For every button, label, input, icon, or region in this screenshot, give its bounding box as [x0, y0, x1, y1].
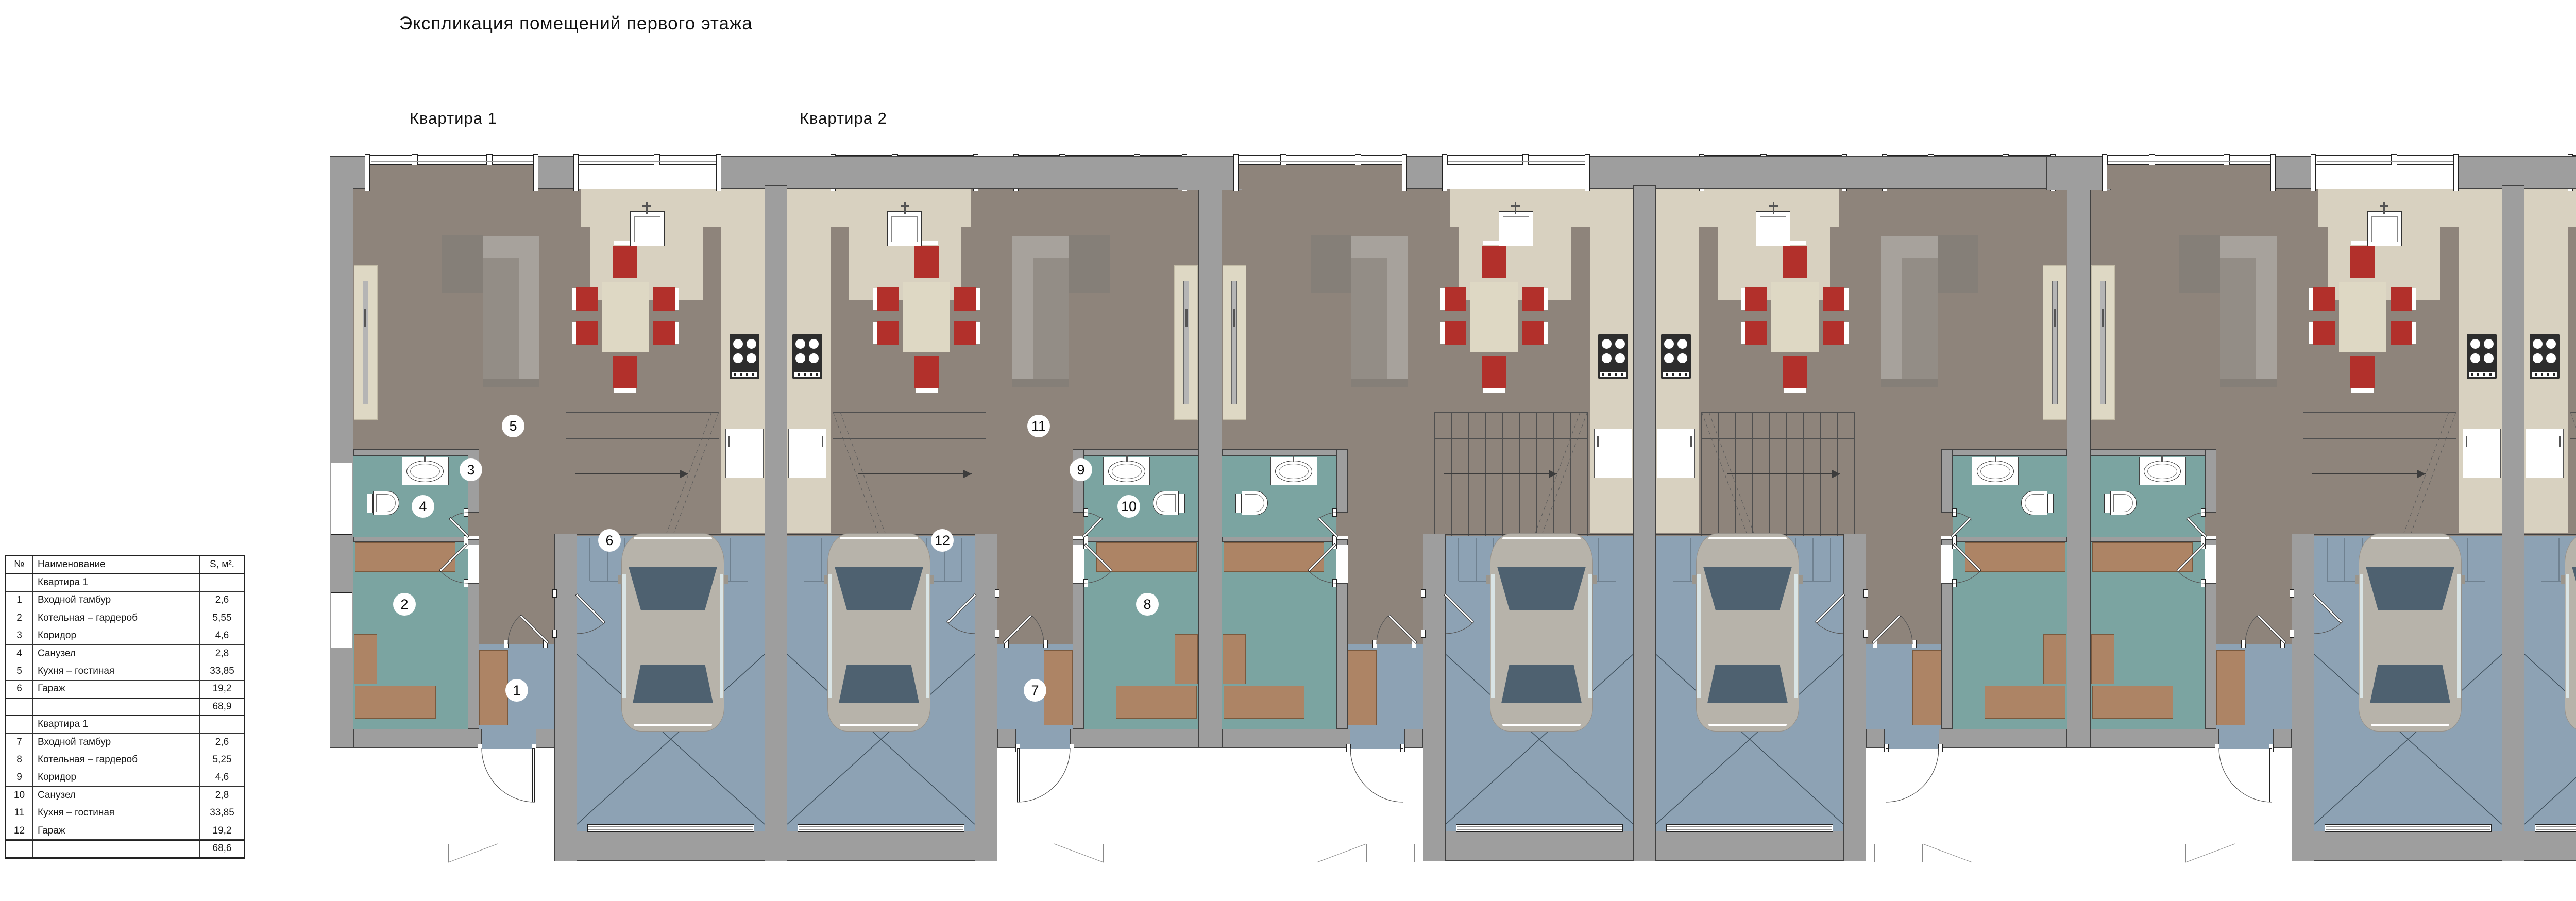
- cell-number: №: [6, 556, 33, 573]
- cell-area: 68,9: [200, 699, 244, 715]
- car: [1696, 533, 1799, 732]
- party-wall-2: [2067, 156, 2091, 748]
- cell-area: [200, 716, 244, 733]
- cell-name: Кухня – гостиная: [33, 662, 200, 679]
- table-row: 11Кухня – гостиная33,85: [6, 804, 244, 822]
- unit-linework: [1656, 0, 2067, 901]
- cell-number: 4: [6, 645, 33, 662]
- unit-linework: [2524, 0, 2576, 901]
- entry-door-leaf: [1886, 748, 1888, 802]
- cell-number: 11: [6, 804, 33, 821]
- end-wall-left: [330, 156, 353, 748]
- party-wall-1: [1198, 156, 1222, 748]
- cell-area: 4,6: [200, 769, 244, 786]
- floor-plan-drawing: 123456789101112: [0, 0, 2576, 901]
- cell-name: [33, 699, 200, 715]
- cell-name: Коридор: [33, 627, 200, 644]
- car-rear-trim: [840, 724, 918, 726]
- end-wall-window-line-1: [334, 463, 334, 535]
- cell-name: Санузел: [33, 645, 200, 662]
- car-side-glass-left: [1491, 574, 1495, 698]
- car-front-trim: [840, 537, 918, 539]
- room-marker-2: 2: [393, 593, 416, 616]
- table-row: 2Котельная – гардероб5,55: [6, 609, 244, 627]
- cell-number: 6: [6, 681, 33, 698]
- cell-name: Гараж: [33, 681, 200, 698]
- page-title: Экспликация помещений первого этажа: [399, 13, 753, 34]
- car-side-glass-right: [1588, 574, 1592, 698]
- car-windshield: [1497, 567, 1586, 610]
- cell-name: Котельная – гардероб: [33, 609, 200, 626]
- cell-area: [200, 574, 244, 591]
- car-rear-trim: [2371, 724, 2449, 726]
- cell-name: Наименование: [33, 556, 200, 573]
- table-total-row: 68,9: [6, 698, 244, 716]
- cell-area: 33,85: [200, 804, 244, 821]
- cell-area: 4,6: [200, 627, 244, 644]
- car-side-glass-right: [720, 574, 723, 698]
- cell-name: Коридор: [33, 769, 200, 786]
- unit-a-0: [353, 0, 765, 901]
- room-marker-7: 7: [1024, 679, 1046, 702]
- car-mirror-left: [930, 575, 934, 584]
- cell-number: 3: [6, 627, 33, 644]
- unit-a-1: [1222, 0, 1633, 901]
- car: [827, 533, 930, 732]
- car-side-glass-left: [926, 574, 929, 698]
- car-rear-trim: [634, 724, 712, 726]
- room-marker-9: 9: [1070, 458, 1092, 481]
- table-row: 1Входной тамбур2,6: [6, 592, 244, 609]
- car-rear-window: [633, 665, 713, 703]
- cell-name: Котельная – гардероб: [33, 751, 200, 768]
- table-header-row: №НаименованиеS, м².: [6, 556, 244, 574]
- unit-a-2: [2091, 0, 2502, 901]
- car-side-glass-left: [2360, 574, 2363, 698]
- car-mirror-left: [1486, 575, 1490, 584]
- cell-area: 5,25: [200, 751, 244, 768]
- car-side-glass-right: [2457, 574, 2461, 698]
- car-rear-trim: [1502, 724, 1581, 726]
- car-mirror-right: [724, 575, 728, 584]
- cell-number: 10: [6, 787, 33, 804]
- table-section-row: Квартира 1: [6, 716, 244, 734]
- room-marker-1: 1: [505, 679, 528, 702]
- car: [2565, 533, 2576, 732]
- cell-area: 5,55: [200, 609, 244, 626]
- apartment-2-label: Квартира 2: [800, 109, 887, 128]
- car-rear-window: [839, 665, 919, 703]
- car: [621, 533, 724, 732]
- entry-door-leaf: [1401, 748, 1403, 802]
- cell-number: [6, 841, 33, 856]
- car-mirror-right: [1592, 575, 1597, 584]
- cell-name: Квартира 1: [33, 574, 200, 591]
- table-row: 5Кухня – гостиная33,85: [6, 662, 244, 680]
- room-marker-11: 11: [1027, 415, 1050, 437]
- car-mirror-right: [2561, 575, 2565, 584]
- car-mirror-left: [2355, 575, 2359, 584]
- table-row: 10Санузел2,8: [6, 787, 244, 804]
- cell-area: S, м².: [200, 556, 244, 573]
- room-marker-8: 8: [1136, 593, 1159, 616]
- unit-linework: [787, 0, 1198, 901]
- car-front-trim: [634, 537, 712, 539]
- car-side-glass-left: [1794, 574, 1798, 698]
- car: [2359, 533, 2462, 732]
- unit-b-1: [1656, 0, 2067, 901]
- room-marker-10: 10: [1117, 495, 1140, 518]
- car-side-glass-right: [1697, 574, 1701, 698]
- cell-number: 9: [6, 769, 33, 786]
- floor-plan-canvas: Экспликация помещений первого этажа Квар…: [0, 0, 2576, 901]
- cell-number: 5: [6, 662, 33, 679]
- cell-name: [33, 841, 200, 856]
- table-row: 3Коридор4,6: [6, 627, 244, 645]
- car-front-trim: [2371, 537, 2449, 539]
- room-marker-3: 3: [460, 458, 482, 481]
- car-mirror-left: [1799, 575, 1803, 584]
- cell-number: [6, 716, 33, 733]
- unit-b-2: [2524, 0, 2576, 901]
- cell-area: 19,2: [200, 822, 244, 839]
- table-section-row: Квартира 1: [6, 574, 244, 591]
- table-row: 12Гараж19,2: [6, 822, 244, 840]
- car-windshield: [1703, 567, 1792, 610]
- entry-door-leaf: [1017, 748, 1020, 802]
- car-front-trim: [1708, 537, 1787, 539]
- end-wall-window-line-2: [334, 592, 334, 648]
- unit-linework: [2091, 0, 2502, 901]
- entry-door-leaf: [2269, 748, 2272, 802]
- cell-area: 2,8: [200, 787, 244, 804]
- pair-center-wall-1: [1633, 185, 1656, 861]
- cell-number: 7: [6, 734, 33, 751]
- table-row: 9Коридор4,6: [6, 769, 244, 787]
- car-rear-window: [1707, 665, 1788, 703]
- room-marker-12: 12: [931, 529, 954, 552]
- car-mirror-right: [1692, 575, 1697, 584]
- car-side-glass-left: [622, 574, 626, 698]
- car-rear-window: [1501, 665, 1582, 703]
- car-rear-window: [2370, 665, 2450, 703]
- car-front-trim: [1502, 537, 1581, 539]
- car-windshield: [835, 567, 923, 610]
- unit-b-0: [787, 0, 1198, 901]
- car-mirror-right: [2461, 575, 2465, 584]
- room-marker-4: 4: [412, 495, 434, 518]
- room-legend-table: №НаименованиеS, м².Квартира 11Входной та…: [5, 555, 245, 859]
- cell-area: 2,8: [200, 645, 244, 662]
- pair-center-wall-0: [765, 185, 787, 861]
- table-row: 6Гараж19,2: [6, 681, 244, 698]
- unit-linework: [353, 0, 765, 901]
- car-rear-trim: [1708, 724, 1787, 726]
- cell-number: 8: [6, 751, 33, 768]
- car-windshield: [629, 567, 717, 610]
- cell-area: 19,2: [200, 681, 244, 698]
- apartment-1-label: Квартира 1: [410, 109, 497, 128]
- table-row: 8Котельная – гардероб5,25: [6, 751, 244, 769]
- room-marker-5: 5: [502, 415, 524, 437]
- table-row: 4Санузел2,8: [6, 645, 244, 662]
- pair-center-wall-2: [2502, 185, 2524, 861]
- table-row: 7Входной тамбур2,6: [6, 734, 244, 751]
- cell-area: 68,6: [200, 841, 244, 856]
- cell-name: Кухня – гостиная: [33, 804, 200, 821]
- unit-linework: [1222, 0, 1633, 901]
- cell-number: 1: [6, 592, 33, 609]
- cell-name: Входной тамбур: [33, 734, 200, 751]
- cell-area: 33,85: [200, 662, 244, 679]
- car-mirror-right: [824, 575, 828, 584]
- cell-number: 2: [6, 609, 33, 626]
- cell-area: 2,6: [200, 592, 244, 609]
- car-windshield: [2366, 567, 2454, 610]
- cell-name: Квартира 1: [33, 716, 200, 733]
- car-side-glass-right: [2566, 574, 2569, 698]
- cell-area: 2,6: [200, 734, 244, 751]
- cell-name: Санузел: [33, 787, 200, 804]
- entry-door-leaf: [532, 748, 535, 802]
- cell-number: 12: [6, 822, 33, 839]
- car: [1490, 533, 1593, 732]
- table-total-row: 68,6: [6, 840, 244, 857]
- room-marker-6: 6: [598, 529, 621, 552]
- car-side-glass-right: [828, 574, 832, 698]
- car-mirror-left: [618, 575, 622, 584]
- cell-number: [6, 574, 33, 591]
- cell-name: Гараж: [33, 822, 200, 839]
- cell-number: [6, 699, 33, 715]
- cell-name: Входной тамбур: [33, 592, 200, 609]
